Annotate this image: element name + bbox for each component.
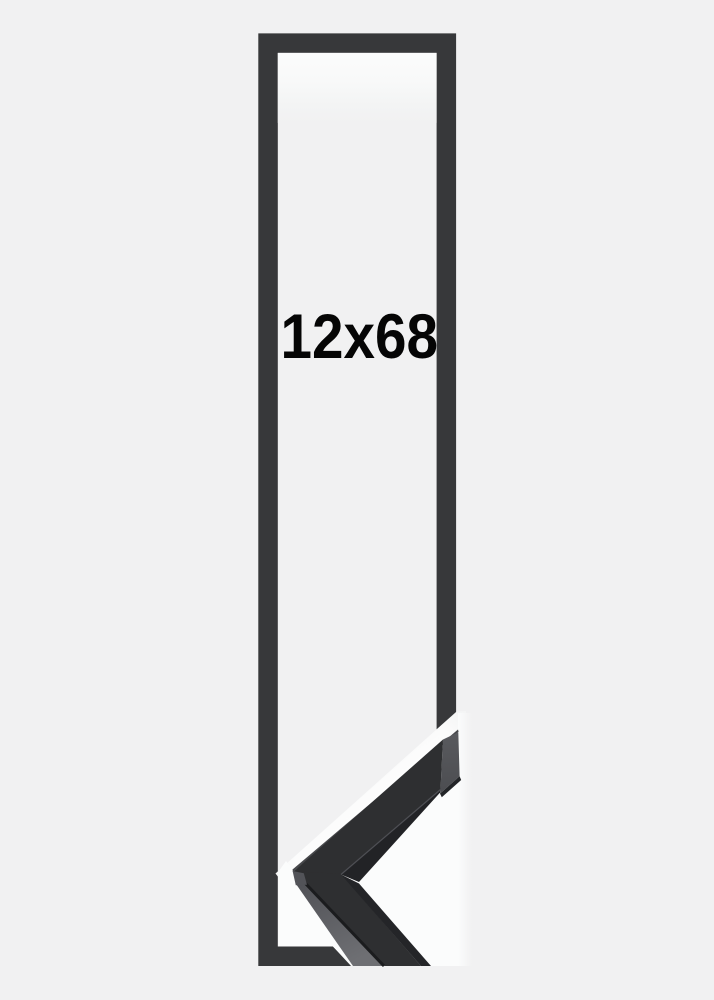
svg-text:12x68: 12x68 — [281, 302, 439, 372]
